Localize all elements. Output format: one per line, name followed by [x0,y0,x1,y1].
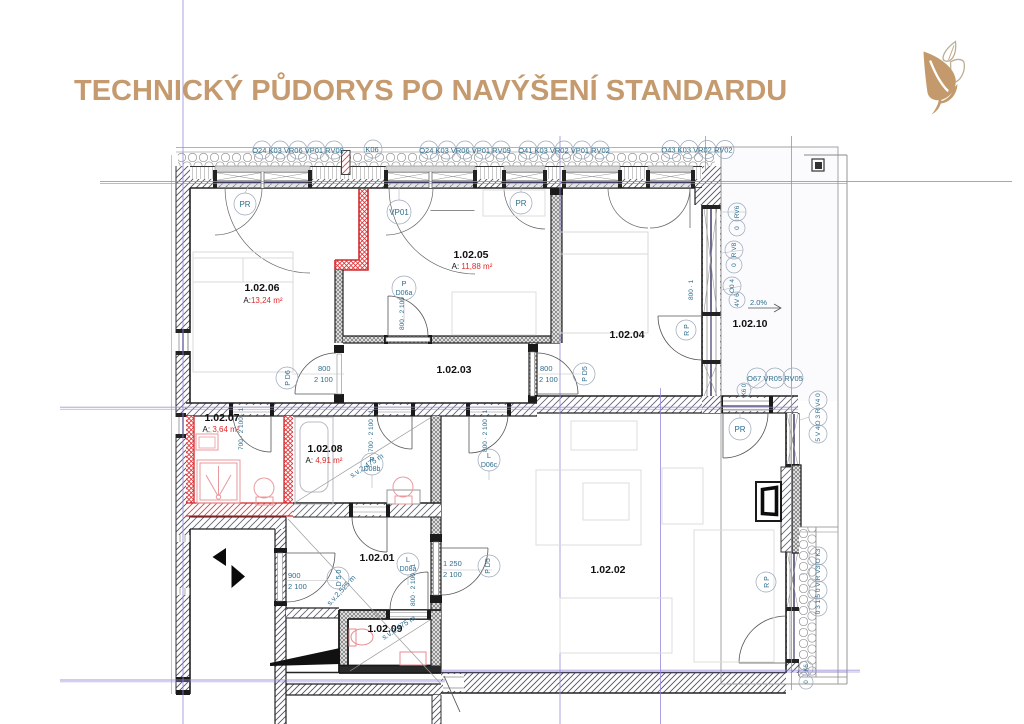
svg-text:2.0%: 2.0% [750,298,767,307]
svg-text:P D5: P D5 [582,366,589,382]
svg-text:0: 0 [734,226,741,230]
svg-text:O K3: O K3 [815,548,822,563]
svg-text:1.02.10: 1.02.10 [732,318,767,330]
svg-text:1.02.03: 1.02.03 [436,364,471,376]
svg-text:4V 6: 4V 6 [734,293,741,307]
svg-text:R V3: R V3 [815,565,822,580]
svg-text:A:13,24 m²: A:13,24 m² [243,296,282,305]
svg-text:K06: K06 [365,145,378,154]
svg-text:D 5 0: D 5 0 [336,570,343,587]
svg-text:D06a: D06a [396,290,413,297]
svg-text:700 · 2 100 · 1: 700 · 2 100 · 1 [238,407,245,450]
svg-text:2 100: 2 100 [288,582,307,591]
svg-text:1.02.07: 1.02.07 [204,412,239,424]
svg-text:PR: PR [515,199,526,208]
svg-text:K6: K6 [804,664,810,672]
svg-text:1.02.02: 1.02.02 [590,564,625,576]
svg-text:5 V 4: 5 V 4 [815,426,822,442]
svg-text:1.02.06: 1.02.06 [244,282,279,294]
svg-text:R P: R P [764,576,771,588]
svg-text:A: 4,91 m²: A: 4,91 m² [306,456,343,465]
svg-text:R V8: R V8 [731,242,738,257]
svg-text:0: 0 [731,263,738,267]
svg-text:1.02.01: 1.02.01 [359,552,394,564]
svg-text:P: P [401,279,406,288]
svg-text:1.02.04: 1.02.04 [609,329,644,341]
svg-text:PR: PR [734,425,745,434]
svg-text:800: 800 [318,364,331,373]
svg-text:A: 3,64 m²: A: 3,64 m² [203,425,240,434]
svg-text:1.02.08: 1.02.08 [307,443,342,455]
svg-text:700 · 2 100 · 1: 700 · 2 100 · 1 [368,409,375,452]
svg-text:PR: PR [239,200,250,209]
svg-text:1 250: 1 250 [443,559,462,568]
svg-text:D08b: D08b [364,466,381,473]
svg-text:A: 11,88 m²: A: 11,88 m² [452,262,493,271]
svg-text:VP01: VP01 [389,208,409,217]
svg-text:800 · 2 100: 800 · 2 100 [399,297,406,330]
svg-text:P: P [369,455,374,464]
svg-text:RV6: RV6 [734,205,741,218]
svg-text:O41 K03 VR02 VP01 RV02: O41 K03 VR02 VP01 RV02 [518,146,610,155]
svg-text:O67 VR05 RV05: O67 VR05 RV05 [747,374,803,383]
svg-text:TECHNICKÝ PŮDORYS PO NAVÝŠENÍ: TECHNICKÝ PŮDORYS PO NAVÝŠENÍ STANDARDU [74,71,787,107]
svg-text:800 · 1: 800 · 1 [688,279,695,300]
svg-text:800: 800 [540,364,553,373]
svg-text:O 3 R: O 3 R [815,408,822,425]
svg-text:2 100: 2 100 [443,570,462,579]
svg-text:V4 0: V4 0 [815,393,822,407]
svg-text:O0 4: O0 4 [729,279,736,293]
svg-text:P D5: P D5 [485,558,492,574]
svg-text:1.02.05: 1.02.05 [453,249,488,261]
svg-text:L: L [406,555,410,564]
svg-text:5 0 V: 5 0 V [815,582,822,598]
svg-text:O43 K03 VR02 RV02: O43 K03 VR02 RV02 [661,146,732,155]
svg-text:R P: R P [684,324,691,336]
svg-text:K6 0: K6 0 [742,383,748,396]
svg-text:O24 K03 VR06 VP01 RV09: O24 K03 VR06 VP01 RV09 [419,146,511,155]
svg-text:800 · 2 100 · 1: 800 · 2 100 · 1 [482,409,489,452]
svg-text:P D6: P D6 [285,370,292,386]
svg-text:D06c: D06c [481,462,498,469]
svg-text:900: 900 [288,571,301,580]
svg-text:0 3 1: 0 3 1 [815,599,822,614]
svg-text:2 100: 2 100 [539,375,558,384]
svg-text:2 100: 2 100 [314,375,333,384]
svg-text:800 · 2 100 · 1: 800 · 2 100 · 1 [410,563,417,606]
svg-text:O24 K03 VR06 VP01 RV09: O24 K03 VR06 VP01 RV09 [252,146,344,155]
